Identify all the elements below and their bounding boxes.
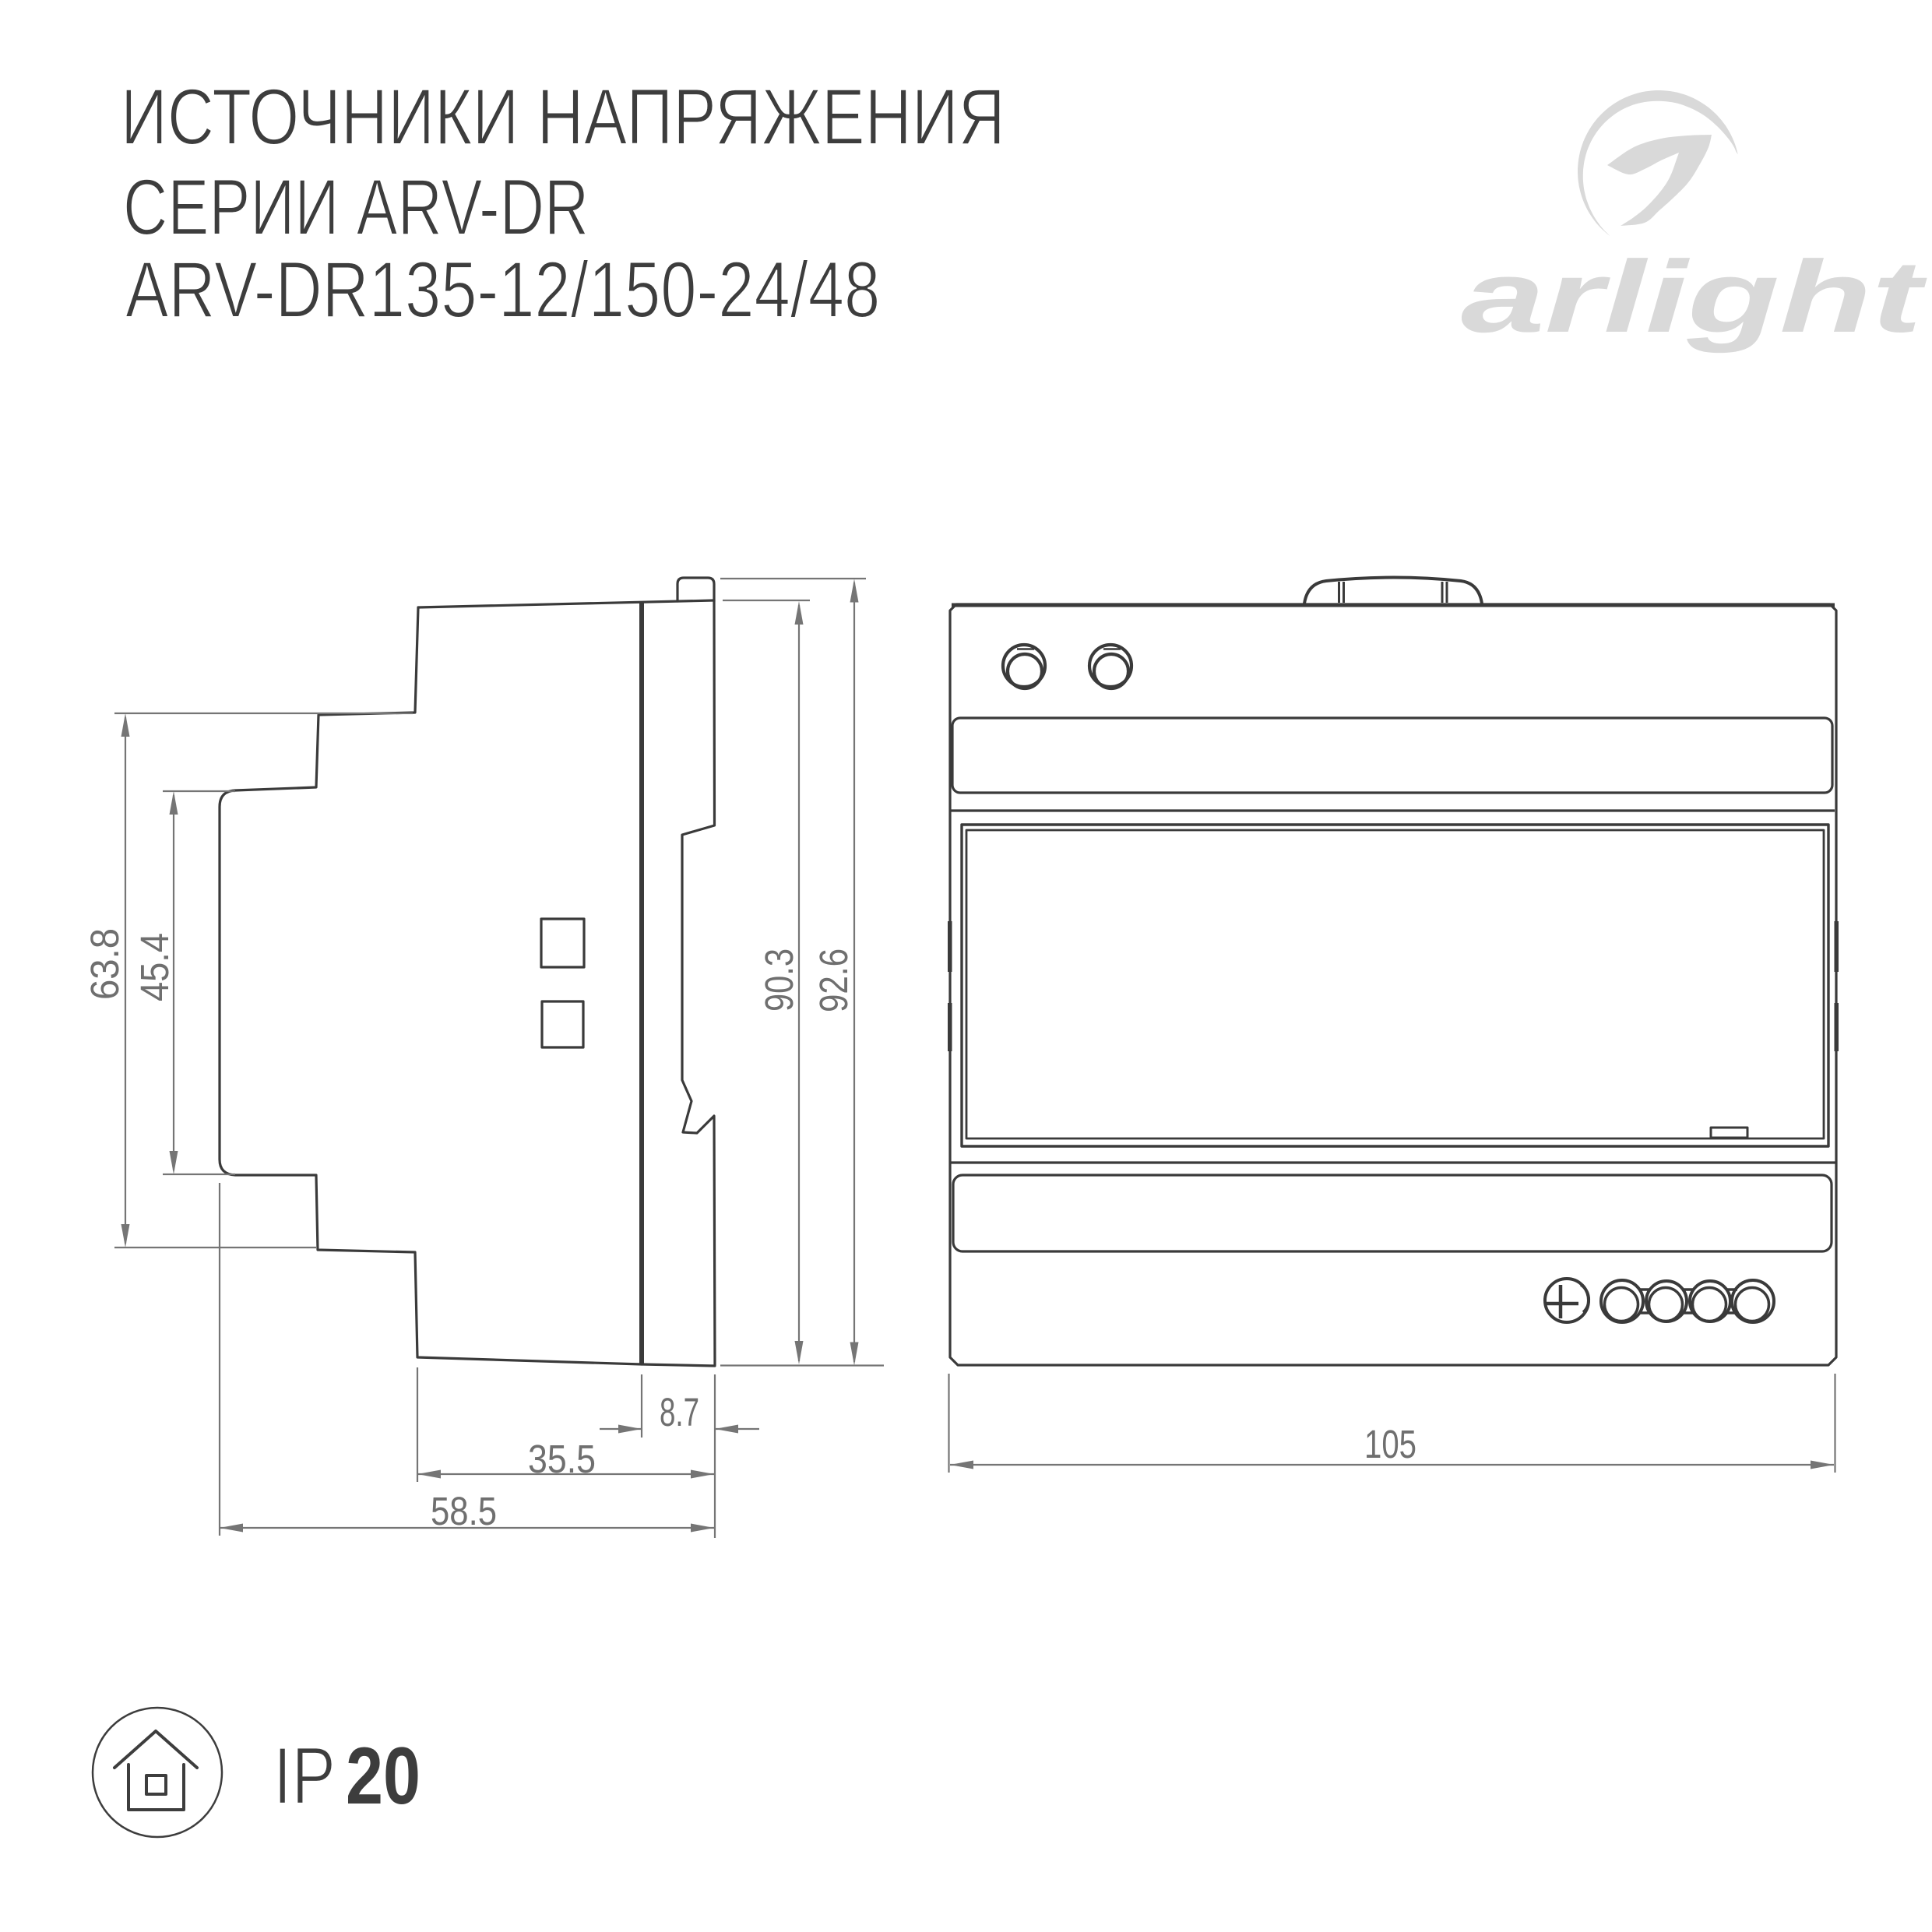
svg-text:8.7: 8.7: [660, 1390, 699, 1434]
svg-text:20: 20: [346, 1731, 421, 1821]
svg-text:IP: IP: [273, 1731, 336, 1821]
svg-text:105: 105: [1364, 1422, 1416, 1466]
svg-text:arlight: arlight: [1461, 239, 1928, 354]
svg-text:63.8: 63.8: [83, 928, 127, 1000]
svg-text:35.5: 35.5: [528, 1437, 596, 1481]
svg-text:58.5: 58.5: [431, 1489, 497, 1533]
svg-text:90.3: 90.3: [757, 948, 801, 1012]
svg-text:92.6: 92.6: [811, 948, 856, 1012]
svg-text:45.4: 45.4: [132, 933, 177, 1001]
